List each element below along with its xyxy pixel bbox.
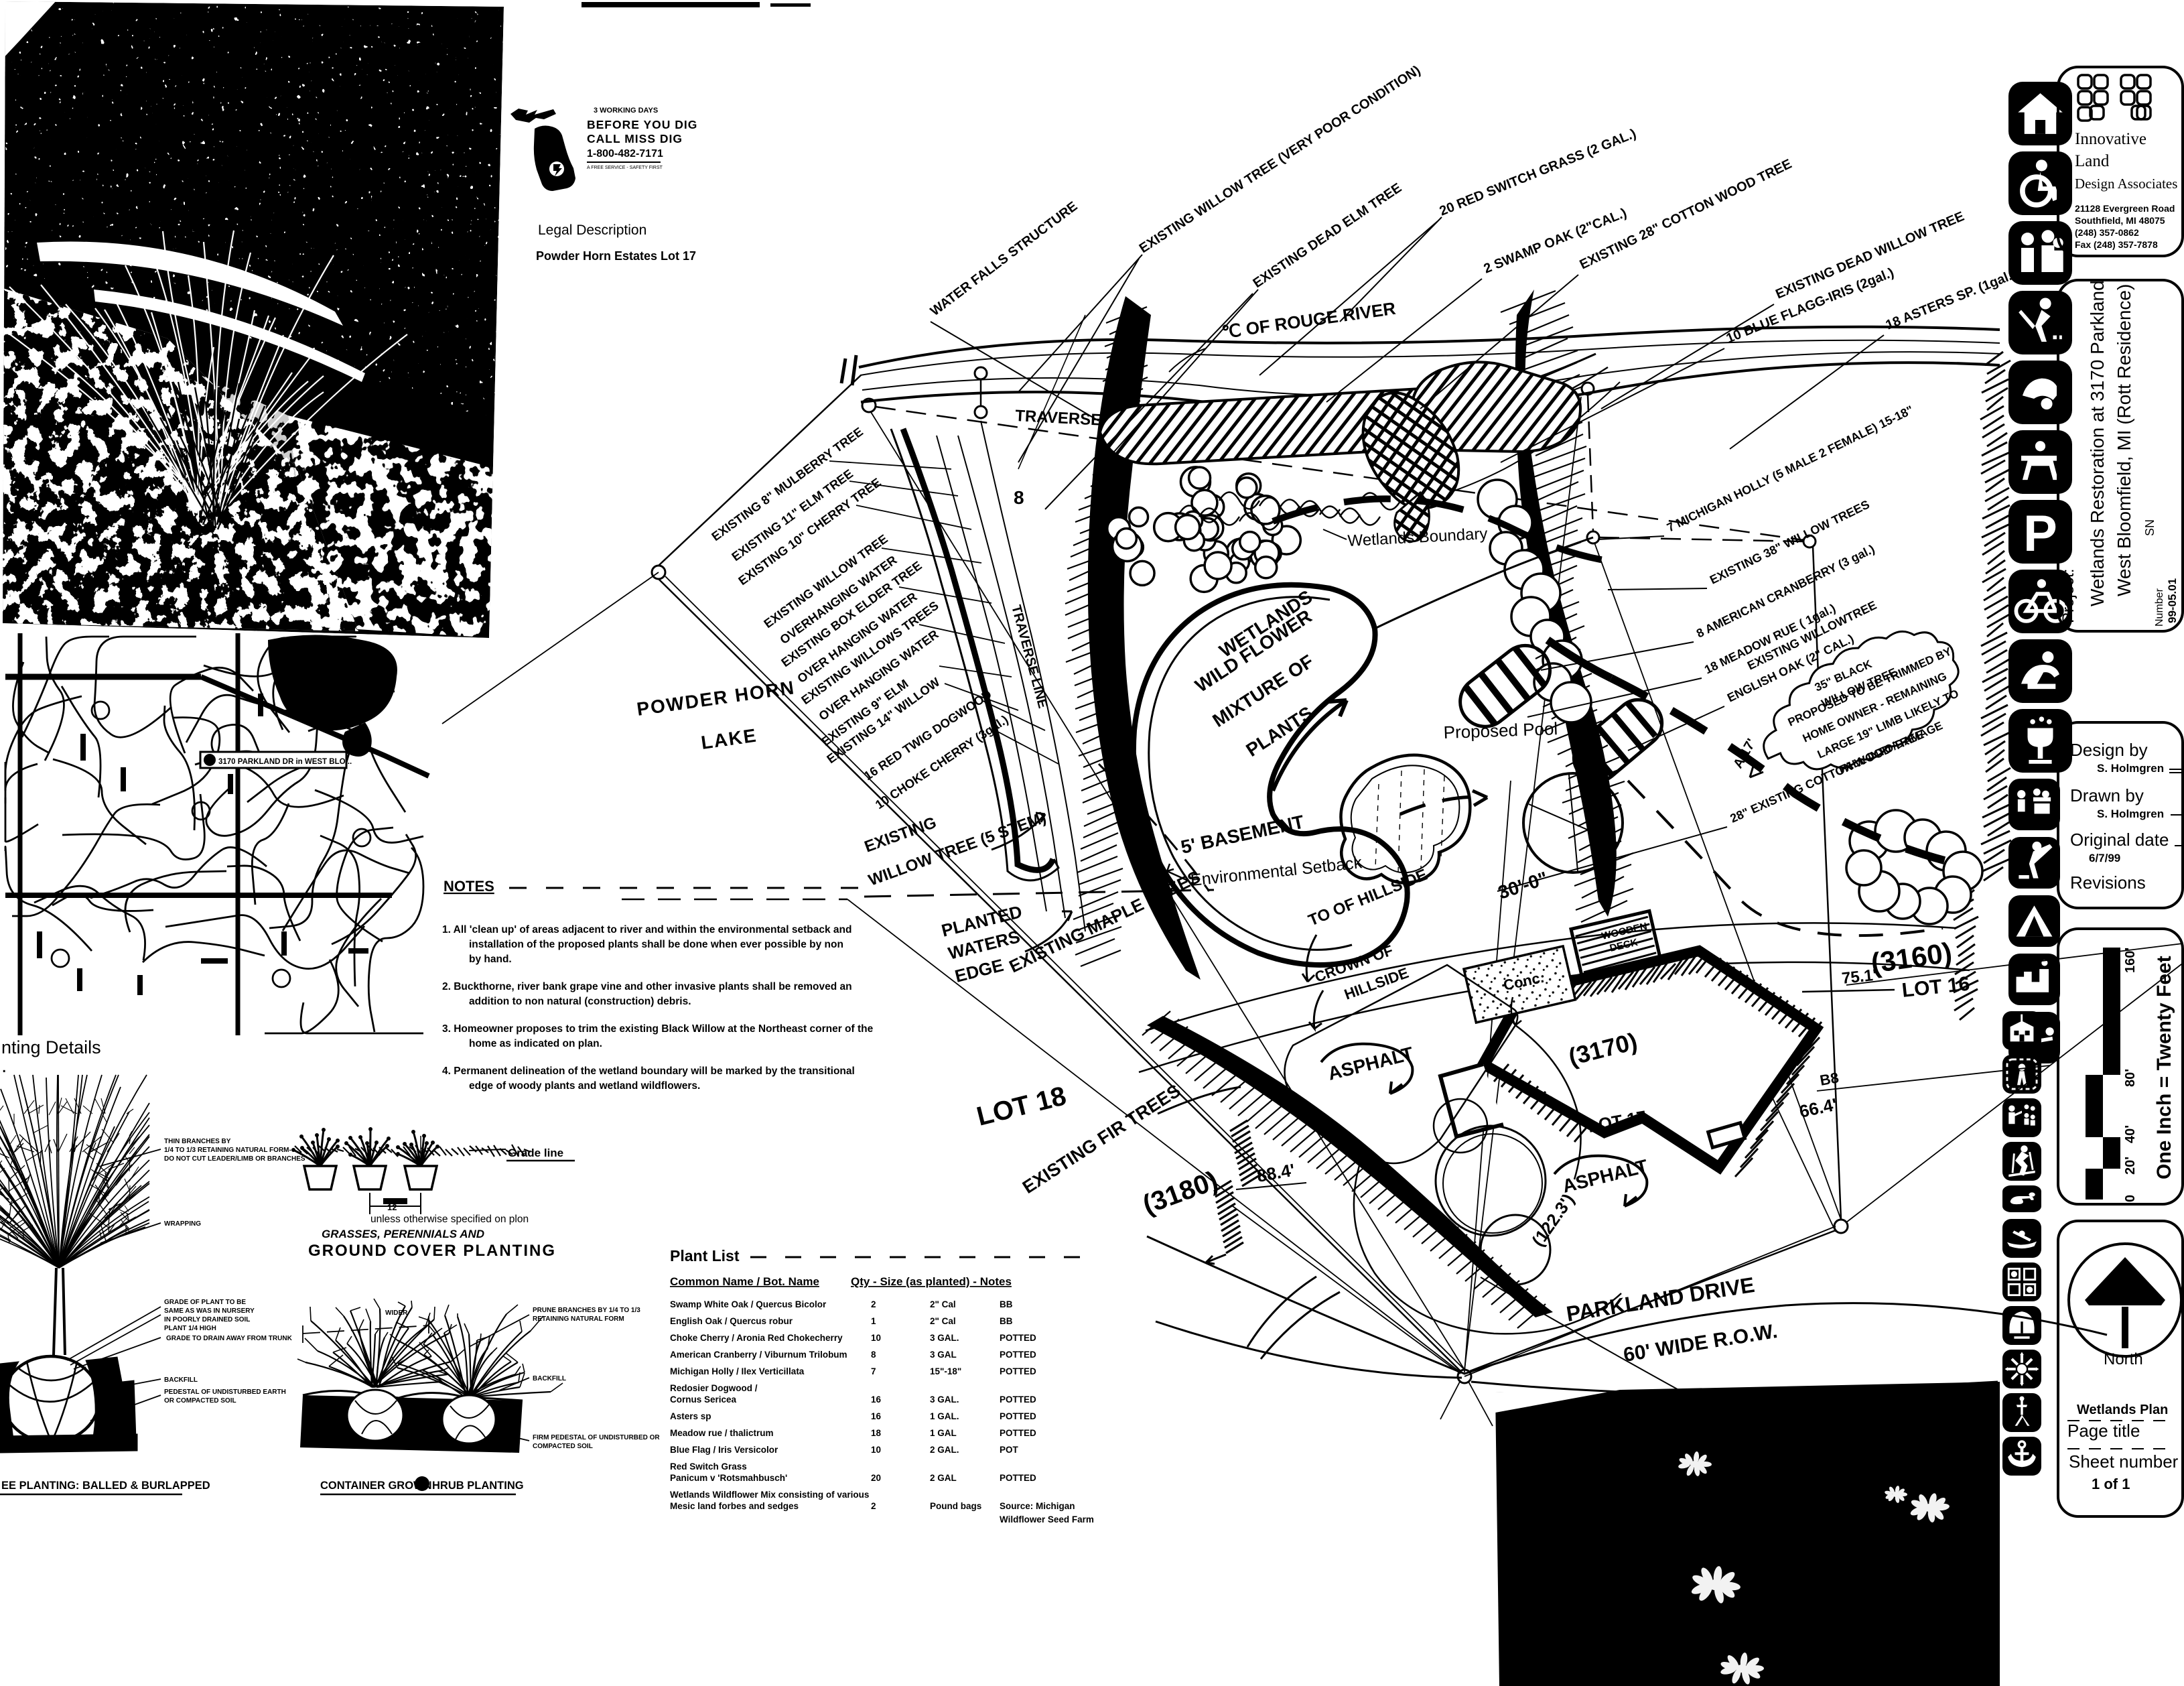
svg-text:THIN BRANCHES BY: THIN BRANCHES BY: [164, 1138, 231, 1145]
svg-text:Plant List: Plant List: [670, 1247, 740, 1264]
svg-text:3 GAL.: 3 GAL.: [930, 1333, 959, 1343]
svg-text:GRASSES, PERENNIALS AND: GRASSES, PERENNIALS AND: [322, 1228, 484, 1240]
svg-text:BEFORE YOU DIG: BEFORE YOU DIG: [587, 118, 697, 131]
svg-text:PEDESTAL OF UNDISTURBED EARTH: PEDESTAL OF UNDISTURBED EARTH: [164, 1388, 286, 1396]
svg-text:2: 2: [871, 1299, 876, 1309]
svg-text:8: 8: [871, 1350, 876, 1360]
svg-text:Source: Michigan: Source: Michigan: [1000, 1501, 1075, 1511]
svg-text:Red Switch Grass: Red Switch Grass: [670, 1462, 747, 1472]
svg-text:18: 18: [871, 1428, 882, 1438]
svg-text:IN POORLY DRAINED SOIL: IN POORLY DRAINED SOIL: [164, 1316, 250, 1323]
svg-text:10: 10: [871, 1333, 881, 1343]
svg-text:West Bloomfield, MI (Rott Resi: West Bloomfield, MI (Rott Residence): [2114, 284, 2134, 596]
svg-text:installation of the proposed p: installation of the proposed plants shal…: [469, 939, 843, 950]
svg-text:BACKFILL: BACKFILL: [164, 1376, 198, 1384]
svg-text:by hand.: by hand.: [469, 954, 512, 965]
svg-text:Wetlands Restoration at 3170 P: Wetlands Restoration at 3170 Parkland: [2087, 280, 2108, 606]
svg-text:99-05.01: 99-05.01: [2166, 578, 2179, 623]
svg-text:1. All 'clean up' of areas adj: 1. All 'clean up' of areas adjacent to r…: [442, 924, 851, 935]
svg-text:WRAPPING: WRAPPING: [164, 1220, 201, 1228]
svg-text:1-800-482-7171: 1-800-482-7171: [587, 148, 663, 159]
svg-text:2" Cal: 2" Cal: [930, 1316, 956, 1326]
svg-text:3 GAL.: 3 GAL.: [930, 1395, 959, 1405]
svg-text:GRADE OF PLANT TO BE: GRADE OF PLANT TO BE: [164, 1299, 246, 1306]
svg-text:160': 160': [2123, 948, 2138, 973]
svg-text:Redosier Dogwood /: Redosier Dogwood /: [670, 1383, 758, 1393]
svg-text:BB: BB: [1000, 1299, 1013, 1309]
svg-text:2: 2: [871, 1501, 876, 1511]
svg-text:40': 40': [2123, 1125, 2138, 1143]
svg-text:unless otherwise specified on: unless otherwise specified on plon: [370, 1214, 529, 1225]
svg-text:Choke Cherry / Aronia Red Chok: Choke Cherry / Aronia Red Chokecherry: [670, 1333, 843, 1343]
svg-text:Fax (248) 357-7878: Fax (248) 357-7878: [2075, 239, 2158, 250]
svg-text:HRUB PLANTING: HRUB PLANTING: [432, 1480, 524, 1492]
svg-text:POTTED: POTTED: [1000, 1473, 1036, 1483]
svg-text:GROUND COVER PLANTING: GROUND COVER PLANTING: [308, 1242, 556, 1260]
svg-text:Grade line: Grade line: [508, 1147, 563, 1159]
svg-text:nting Details: nting Details: [1, 1037, 101, 1057]
svg-text:Innovative: Innovative: [2075, 130, 2146, 148]
svg-text:BB: BB: [1000, 1316, 1013, 1326]
svg-text:Design Associates: Design Associates: [2075, 176, 2177, 192]
svg-text:21128 Evergreen Road: 21128 Evergreen Road: [2075, 203, 2175, 214]
svg-text:Asters sp: Asters sp: [670, 1411, 711, 1421]
svg-text:WIDER: WIDER: [385, 1309, 408, 1317]
svg-text:2 GAL.: 2 GAL.: [930, 1445, 959, 1455]
svg-text:(248) 357-0862: (248) 357-0862: [2075, 227, 2139, 238]
svg-text:GRADE TO DRAIN AWAY FROM TRUNK: GRADE TO DRAIN AWAY FROM TRUNK: [166, 1335, 293, 1342]
svg-text:POTTED: POTTED: [1000, 1411, 1036, 1421]
svg-text:OR COMPACTED SOIL: OR COMPACTED SOIL: [164, 1397, 236, 1405]
svg-text:2" Cal: 2" Cal: [930, 1299, 956, 1309]
svg-text:addition to non natural (const: addition to non natural (construction) d…: [469, 996, 691, 1007]
svg-text:One Inch = Twenty Feet: One Inch = Twenty Feet: [2153, 956, 2175, 1179]
svg-text:home as indicated on plan.: home as indicated on plan.: [469, 1038, 602, 1049]
svg-text:Legal Description: Legal Description: [538, 222, 646, 238]
svg-text:2. Buckthorne, river bank grap: 2. Buckthorne, river bank grape vine and…: [442, 981, 852, 992]
svg-text:20': 20': [2123, 1157, 2138, 1175]
svg-text:1: 1: [871, 1316, 876, 1326]
svg-text:Qty - Size (as planted) - N: Qty - Size (as planted) - Notes: [851, 1275, 1012, 1288]
svg-text:NOTES: NOTES: [443, 878, 494, 895]
svg-text:7: 7: [871, 1366, 876, 1376]
svg-text:North: North: [2104, 1350, 2143, 1368]
svg-text:Wetlands Wildflower Mix consis: Wetlands Wildflower Mix consisting of va…: [670, 1490, 869, 1500]
svg-text:1 GAL.: 1 GAL.: [930, 1411, 959, 1421]
svg-text:Wildflower Seed Farm: Wildflower Seed Farm: [1000, 1514, 1094, 1525]
svg-text:SAME AS WAS IN NURSERY: SAME AS WAS IN NURSERY: [164, 1307, 255, 1315]
svg-text:American Cranberry / Viburnum: American Cranberry / Viburnum Trilobum: [670, 1350, 847, 1360]
svg-text:EE PLANTING: BALLED & BURLAPPE: EE PLANTING: BALLED & BURLAPPED: [1, 1480, 210, 1492]
svg-text:Number: Number: [2154, 588, 2165, 627]
svg-text:16: 16: [871, 1411, 882, 1421]
svg-text:Swamp White Oak / Quercus Bico: Swamp White Oak / Quercus Bicolor: [670, 1299, 827, 1309]
svg-text:6/7/99: 6/7/99: [2089, 852, 2120, 864]
svg-text:English Oak / Quercus robur: English Oak / Quercus robur: [670, 1316, 793, 1326]
svg-text:Page title: Page title: [2067, 1421, 2140, 1441]
svg-text:POTTED: POTTED: [1000, 1366, 1036, 1376]
svg-text:1 GAL: 1 GAL: [930, 1428, 957, 1438]
svg-text:Drawn by: Drawn by: [2070, 785, 2144, 805]
svg-text:Michigan Holly / Ilex Verticil: Michigan Holly / Ilex Verticillata: [670, 1366, 805, 1376]
svg-text:P: P: [2023, 505, 2057, 562]
svg-text:A FREE SERVICE - SAFETY FIRST: A FREE SERVICE - SAFETY FIRST: [587, 166, 663, 170]
svg-text:3. Homeowner proposes to trim: 3. Homeowner proposes to trim the existi…: [442, 1023, 874, 1035]
svg-text:S. Holmgren: S. Holmgren: [2097, 807, 2164, 820]
svg-text:CALL MISS DIG: CALL MISS DIG: [587, 132, 683, 145]
svg-text:10: 10: [871, 1445, 881, 1455]
svg-text:3170 PARKLAND DR in WEST BLO..: 3170 PARKLAND DR in WEST BLO...: [218, 758, 352, 766]
svg-text:COMPACTED SOIL: COMPACTED SOIL: [533, 1443, 593, 1450]
svg-text:Sheet number: Sheet number: [2069, 1451, 2179, 1472]
svg-text:SN: SN: [2143, 519, 2157, 536]
svg-text:BACKFILL: BACKFILL: [533, 1375, 566, 1382]
svg-text:Design by: Design by: [2070, 740, 2148, 760]
svg-text:POT: POT: [1000, 1445, 1019, 1455]
svg-text:Revisions: Revisions: [2070, 872, 2146, 893]
svg-text:Original date: Original date: [2070, 830, 2169, 850]
svg-text:1/4 TO 1/3 RETAINING NATURAL F: 1/4 TO 1/3 RETAINING NATURAL FORM-: [164, 1147, 291, 1154]
svg-text:1 of 1: 1 of 1: [2092, 1476, 2130, 1492]
svg-text:.: .: [1, 1055, 7, 1077]
svg-text:RETAINING NATURAL FORM: RETAINING NATURAL FORM: [533, 1315, 624, 1323]
svg-text:Land: Land: [2075, 152, 2110, 170]
svg-text:POTTED: POTTED: [1000, 1333, 1036, 1343]
svg-text:S. Holmgren: S. Holmgren: [2097, 762, 2164, 775]
svg-text:edge of woody plants and wetla: edge of woody plants and wetland wildflo…: [469, 1080, 700, 1092]
svg-text:POTTED: POTTED: [1000, 1428, 1036, 1438]
svg-text:Southfield, MI 48075: Southfield, MI 48075: [2075, 215, 2165, 226]
svg-text:B8: B8: [1819, 1069, 1840, 1089]
svg-text:Mesic land forbes and sedges: Mesic land forbes and sedges: [670, 1501, 799, 1511]
svg-text:DO NOT CUT LEADER/LIMB OR BRAN: DO NOT CUT LEADER/LIMB OR BRANCHES: [164, 1155, 305, 1163]
svg-text:FIRM PEDESTAL OF UNDISTURBED O: FIRM PEDESTAL OF UNDISTURBED OR: [533, 1434, 660, 1441]
svg-text:15"-18": 15"-18": [930, 1366, 961, 1376]
svg-text:80': 80': [2123, 1069, 2138, 1087]
svg-text:3 WORKING DAYS: 3 WORKING DAYS: [594, 107, 658, 115]
svg-text:16: 16: [871, 1395, 882, 1405]
svg-text:Wetlands Plan: Wetlands Plan: [2077, 1403, 2168, 1417]
svg-text:Cornus Sericea: Cornus Sericea: [670, 1395, 737, 1405]
svg-text:Common Name / Bot. Name: Common Name / Bot. Name: [670, 1275, 819, 1288]
svg-text:POTTED: POTTED: [1000, 1395, 1036, 1405]
svg-text:20: 20: [871, 1473, 881, 1483]
svg-text:PRUNE BRANCHES BY 1/4 TO 1/3: PRUNE BRANCHES BY 1/4 TO 1/3: [533, 1307, 640, 1314]
svg-text:POTTED: POTTED: [1000, 1350, 1036, 1360]
svg-text:8: 8: [1014, 487, 1024, 508]
svg-text:PLANT 1/4 HIGH: PLANT 1/4 HIGH: [164, 1325, 216, 1332]
svg-text:12: 12: [387, 1202, 397, 1212]
svg-text:3 GAL: 3 GAL: [930, 1350, 957, 1360]
svg-text:Project:: Project:: [2059, 569, 2077, 623]
svg-text:4. Permanent delineation of th: 4. Permanent delineation of the wetland …: [442, 1065, 855, 1077]
svg-text:Meadow rue / thalictrum: Meadow rue / thalictrum: [670, 1428, 774, 1438]
svg-text:Blue Flag / Iris Versicolor: Blue Flag / Iris Versicolor: [670, 1445, 778, 1455]
svg-text:Powder Horn Estates Lot 17: Powder Horn Estates Lot 17: [536, 249, 696, 263]
svg-text:2 GAL: 2 GAL: [930, 1473, 957, 1483]
svg-text:Panicum v 'Rotsmahbusch': Panicum v 'Rotsmahbusch': [670, 1473, 787, 1483]
svg-text:0: 0: [2123, 1195, 2138, 1202]
svg-text:Pound bags: Pound bags: [930, 1501, 981, 1511]
